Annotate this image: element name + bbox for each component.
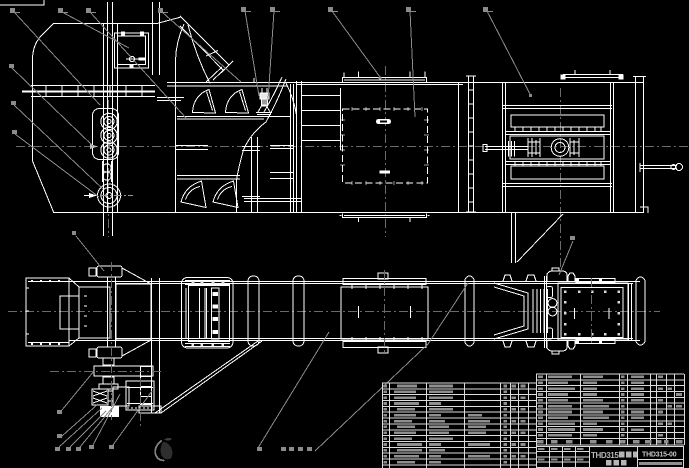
svg-text:THD315: THD315	[591, 451, 619, 460]
svg-text:THD315-00: THD315-00	[642, 452, 677, 459]
